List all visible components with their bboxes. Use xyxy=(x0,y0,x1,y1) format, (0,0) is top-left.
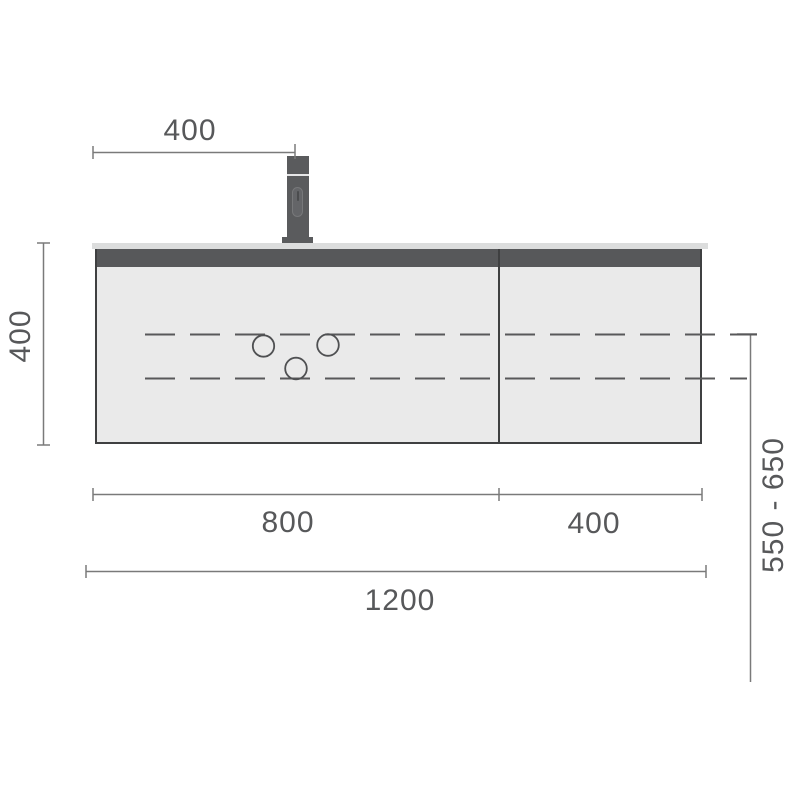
dimension-line-total-width xyxy=(86,565,706,578)
dimension-line-section-widths xyxy=(93,488,702,501)
dimension-overlay xyxy=(0,0,800,800)
label-height: 400 xyxy=(4,309,38,362)
label-left-width: 800 xyxy=(261,506,314,540)
label-height-range: 550 - 650 xyxy=(757,437,791,573)
dimension-line-height-range xyxy=(737,334,757,682)
plumbing-hole-circles xyxy=(253,334,339,379)
vanity-technical-drawing: 400 400 800 400 1200 550 - 650 xyxy=(0,0,800,800)
label-faucet-offset: 400 xyxy=(163,114,216,148)
label-total-width: 1200 xyxy=(365,584,436,618)
dashed-reference-lines xyxy=(145,335,757,379)
label-right-width: 400 xyxy=(567,507,620,541)
dimension-line-height xyxy=(37,243,50,445)
